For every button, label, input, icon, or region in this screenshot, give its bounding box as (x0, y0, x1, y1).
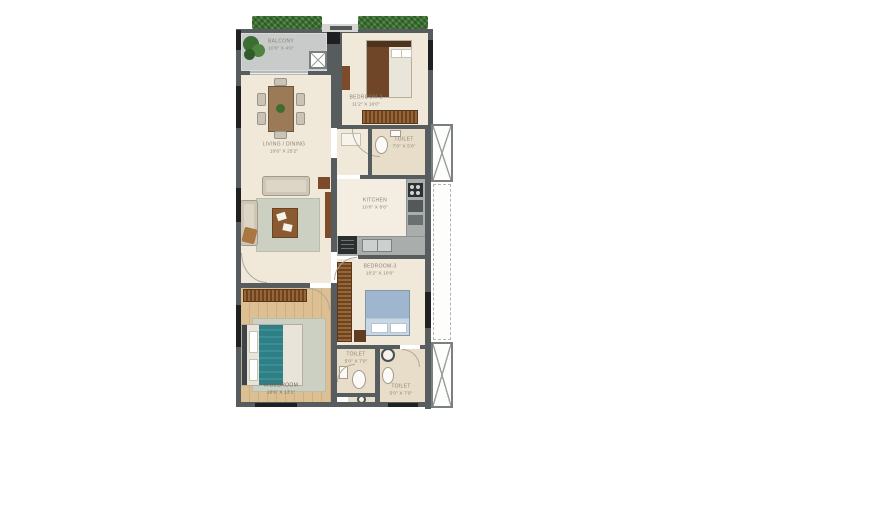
dining-chair (274, 78, 287, 86)
floor-plan: BALCONY 10'0" X 4'0" BEDROOM-2 11'2" X 1… (0, 0, 877, 523)
sink-divider (377, 240, 378, 251)
oven (408, 200, 423, 212)
burner (410, 185, 414, 189)
bed-pillow (401, 49, 412, 58)
potted-plant-icon (244, 49, 255, 60)
burner (416, 185, 420, 189)
refrigerator (338, 236, 357, 254)
dining-chair (296, 112, 305, 125)
wall (358, 255, 426, 259)
wall (331, 71, 337, 128)
room-label-toilet-left: TOILET 5'0" X 7'0" (345, 351, 368, 365)
window-marker (425, 292, 431, 328)
window-marker (236, 30, 241, 50)
nightstand (354, 330, 366, 342)
fridge-line (341, 240, 354, 241)
table-centerpiece (276, 104, 285, 113)
window-marker (255, 403, 297, 407)
wall (368, 129, 372, 179)
bed-pillow (249, 331, 258, 353)
wardrobe (243, 289, 307, 302)
room-label-toilet-top: TOILET 7'0" X 5'0" (393, 136, 416, 150)
wall (337, 29, 342, 129)
ledge-sill (330, 26, 352, 30)
wc-toilet-seat (382, 367, 394, 384)
sofa-cushion (266, 180, 306, 192)
bed-headboard (242, 325, 247, 385)
hob-stove (408, 183, 423, 197)
wall (337, 393, 380, 397)
room-label-balcony: BALCONY 10'0" X 4'0" (268, 38, 294, 52)
window-marker (236, 305, 241, 347)
duct-shaft (431, 342, 453, 408)
washbasin (381, 348, 395, 362)
double-bed (365, 290, 410, 336)
wall (331, 158, 337, 252)
kitchen-sink (362, 239, 392, 252)
room-label-toilet-right: TOILET 5'0" X 7'0" (390, 383, 413, 397)
sliding-door-track (250, 73, 308, 74)
room-label-master-bedroom: M.BEDROOM 10'6" X 13'1" (264, 382, 298, 396)
bed-pillow (249, 359, 258, 381)
burner (416, 191, 420, 195)
dining-chair (274, 131, 287, 139)
room-label-bedroom2: BEDROOM-2 11'2" X 10'0" (349, 94, 382, 108)
fridge-line (341, 248, 354, 249)
burner (410, 191, 414, 195)
open-duct (433, 184, 451, 340)
sofa (262, 176, 310, 196)
sliding-door (250, 71, 308, 75)
wall (241, 283, 310, 288)
hedge-planter (358, 16, 428, 29)
window-marker (428, 40, 433, 70)
bed-pillow (371, 323, 388, 333)
window-marker (236, 86, 241, 128)
wall (420, 345, 426, 349)
wall (337, 125, 433, 129)
dining-chair (257, 93, 266, 106)
bed-pillow (390, 323, 407, 333)
balcony-duct-shaft (309, 51, 327, 69)
double-bed (241, 324, 303, 386)
bed-blanket (367, 47, 389, 97)
wardrobe (362, 110, 418, 124)
wall (375, 349, 380, 407)
room-label-kitchen: KITCHEN 10'0" X 8'6" (362, 197, 388, 211)
bedside-cabinet (342, 66, 350, 90)
bed-blanket (259, 325, 283, 385)
window-marker (236, 188, 241, 222)
dining-chair (257, 112, 266, 125)
window-marker (327, 30, 340, 44)
window-marker (388, 403, 418, 407)
cabinet (318, 177, 330, 189)
kitchen-appliance (408, 215, 423, 225)
hedge-planter (252, 16, 322, 29)
double-bed (366, 40, 412, 98)
room-label-living-dining: LIVING / DINING 10'6" X 25'2" (263, 141, 306, 155)
duct-shaft (431, 124, 453, 182)
fridge-line (341, 244, 354, 245)
wall (337, 345, 400, 349)
room-label-bedroom3: BEDROOM-3 10'2" X 10'0" (363, 263, 396, 277)
dining-chair (296, 93, 305, 106)
